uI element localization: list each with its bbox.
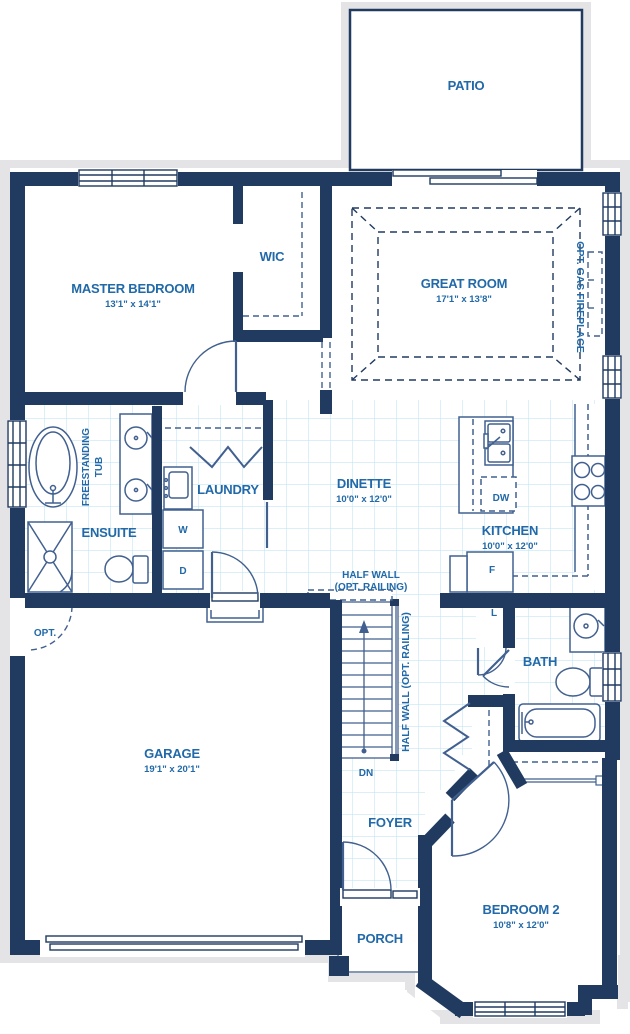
ensuite-vanity bbox=[120, 414, 152, 514]
washer-label: W bbox=[178, 525, 188, 536]
front-door bbox=[343, 890, 417, 898]
shower bbox=[28, 522, 72, 592]
linen-label: L bbox=[491, 608, 497, 619]
patio-label: PATIO bbox=[448, 78, 485, 93]
floor-plan: PATIO MASTER BEDROOM 13'1" x 14'1" WIC G… bbox=[0, 0, 630, 1034]
bathtub bbox=[519, 704, 600, 742]
kitchen-label: KITCHEN bbox=[482, 523, 538, 538]
freestanding-tub bbox=[29, 427, 77, 507]
master-bedroom-label: MASTER BEDROOM bbox=[71, 281, 195, 296]
ensuite-toilet bbox=[105, 556, 148, 583]
dishwasher-label: DW bbox=[493, 493, 510, 504]
fridge-label: F bbox=[489, 565, 495, 576]
bedroom2-window bbox=[475, 1002, 565, 1016]
master-bedroom-dims: 13'1" x 14'1" bbox=[105, 299, 161, 310]
porch-pillar bbox=[329, 956, 349, 976]
bedroom2-dims: 10'8" x 12'0" bbox=[493, 920, 549, 931]
opt-door-label: OPT. bbox=[34, 628, 56, 639]
opt-gas-fireplace-label: OPT. GAS FIREPLACE bbox=[574, 241, 586, 352]
dinette-label: DINETTE bbox=[337, 476, 392, 491]
great-room-dims: 17'1" x 13'8" bbox=[436, 294, 492, 305]
half-wall-label-1: HALF WALL bbox=[342, 570, 400, 581]
master-window bbox=[79, 170, 177, 186]
laundry-label: LAUNDRY bbox=[197, 482, 259, 497]
bath-window bbox=[603, 653, 621, 701]
kitchen-side-counter bbox=[450, 556, 467, 592]
ensuite-window bbox=[8, 421, 26, 507]
bath-label: BATH bbox=[523, 654, 557, 669]
half-wall-vertical-label: HALF WALL (OPT. RAILING) bbox=[400, 612, 412, 752]
porch-label: PORCH bbox=[357, 931, 403, 946]
great-room-window-lower bbox=[603, 356, 621, 398]
bath-toilet bbox=[556, 668, 604, 696]
half-wall-label-2: (OPT. RAILING) bbox=[335, 582, 408, 593]
bedroom2-label: BEDROOM 2 bbox=[483, 902, 560, 917]
great-room-label: GREAT ROOM bbox=[421, 276, 508, 291]
freestanding-tub-label-2: TUB bbox=[94, 457, 105, 478]
laundry-sink bbox=[164, 467, 192, 509]
stairs bbox=[336, 599, 399, 761]
garage-dims: 19'1" x 20'1" bbox=[144, 764, 200, 775]
laundry-door-slab bbox=[212, 593, 258, 601]
ensuite-label: ENSUITE bbox=[82, 525, 137, 540]
stairs-dn-label: DN bbox=[359, 768, 373, 779]
wic-label: WIC bbox=[260, 249, 285, 264]
garage-label: GARAGE bbox=[144, 746, 200, 761]
dinette-dims: 10'0" x 12'0" bbox=[336, 494, 392, 505]
great-room-window-upper bbox=[603, 193, 621, 235]
floor-plan-drawing: PATIO MASTER BEDROOM 13'1" x 14'1" WIC G… bbox=[0, 0, 630, 1034]
dryer-label: D bbox=[179, 566, 186, 577]
foyer-label: FOYER bbox=[368, 815, 413, 830]
kitchen-dims: 10'0" x 12'0" bbox=[482, 541, 538, 552]
freestanding-tub-label-1: FREESTANDING bbox=[81, 428, 92, 506]
